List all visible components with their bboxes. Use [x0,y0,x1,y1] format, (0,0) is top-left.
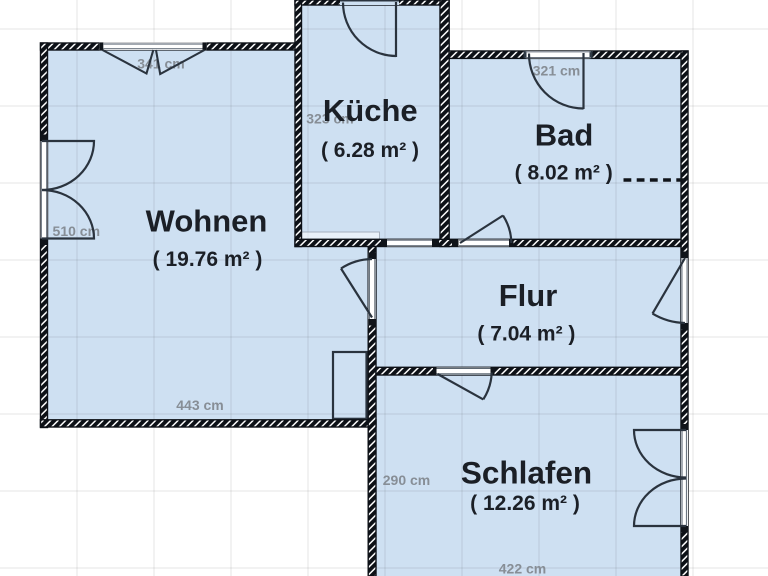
svg-text:443 cm: 443 cm [176,397,223,413]
svg-text:290 cm: 290 cm [383,472,430,488]
svg-text:Bad: Bad [535,117,594,152]
svg-text:Flur: Flur [499,278,558,313]
svg-text:321 cm: 321 cm [533,63,580,79]
svg-text:422 cm: 422 cm [499,561,546,576]
svg-text:( 12.26 m² ): ( 12.26 m² ) [470,492,580,515]
svg-text:( 6.28 m² ): ( 6.28 m² ) [321,139,419,162]
svg-text:( 7.04 m² ): ( 7.04 m² ) [477,323,575,346]
svg-text:Küche: Küche [323,93,418,128]
svg-text:( 19.76 m² ): ( 19.76 m² ) [153,248,263,271]
svg-text:Schlafen: Schlafen [461,455,592,491]
svg-text:( 8.02 m² ): ( 8.02 m² ) [515,162,613,185]
svg-text:Wohnen: Wohnen [146,204,268,239]
